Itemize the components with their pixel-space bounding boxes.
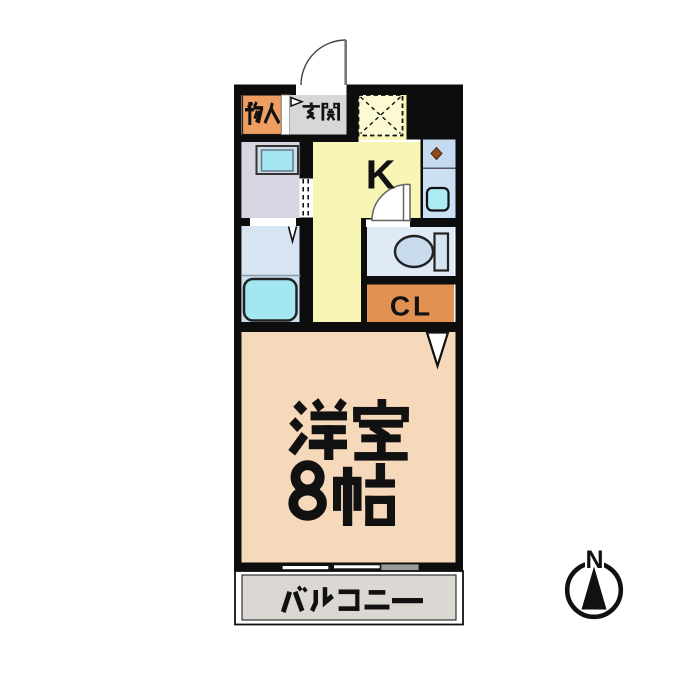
svg-text:N: N <box>585 546 603 574</box>
svg-text:CL: CL <box>390 291 433 322</box>
svg-text:K: K <box>366 152 396 198</box>
